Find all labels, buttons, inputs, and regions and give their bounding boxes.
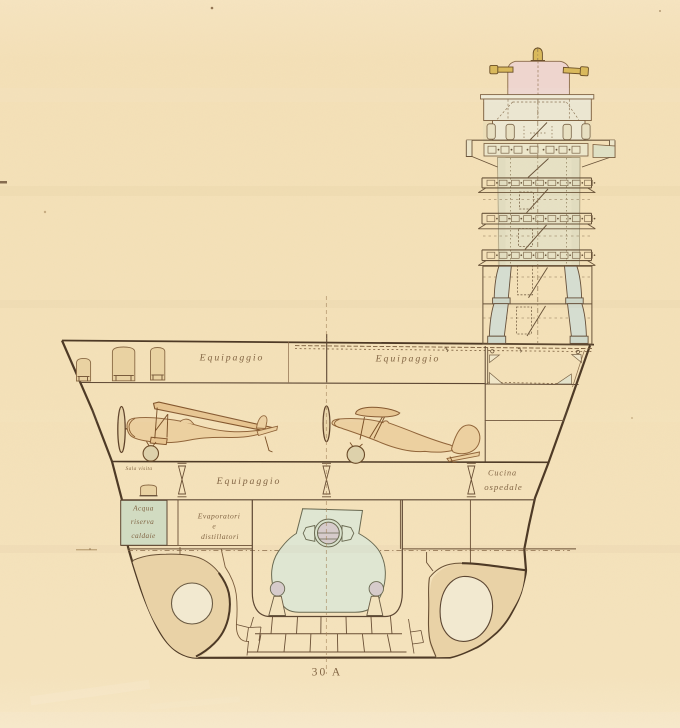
svg-text:caldaie: caldaie — [131, 531, 156, 540]
svg-text:distillatori: distillatori — [201, 532, 239, 541]
svg-text:Acqua: Acqua — [132, 504, 154, 513]
svg-text:Cucina: Cucina — [488, 469, 517, 478]
svg-text:ospedale: ospedale — [484, 482, 522, 492]
svg-text:riserva: riserva — [131, 517, 154, 526]
svg-text:Evaporatori: Evaporatori — [197, 512, 241, 521]
svg-text:Equipaggio: Equipaggio — [216, 476, 282, 487]
svg-text:Sala visita: Sala visita — [125, 466, 152, 472]
svg-text:Equipaggio: Equipaggio — [199, 353, 265, 364]
svg-text:30 A: 30 A — [312, 667, 343, 679]
svg-text:Equipaggio: Equipaggio — [375, 354, 441, 365]
